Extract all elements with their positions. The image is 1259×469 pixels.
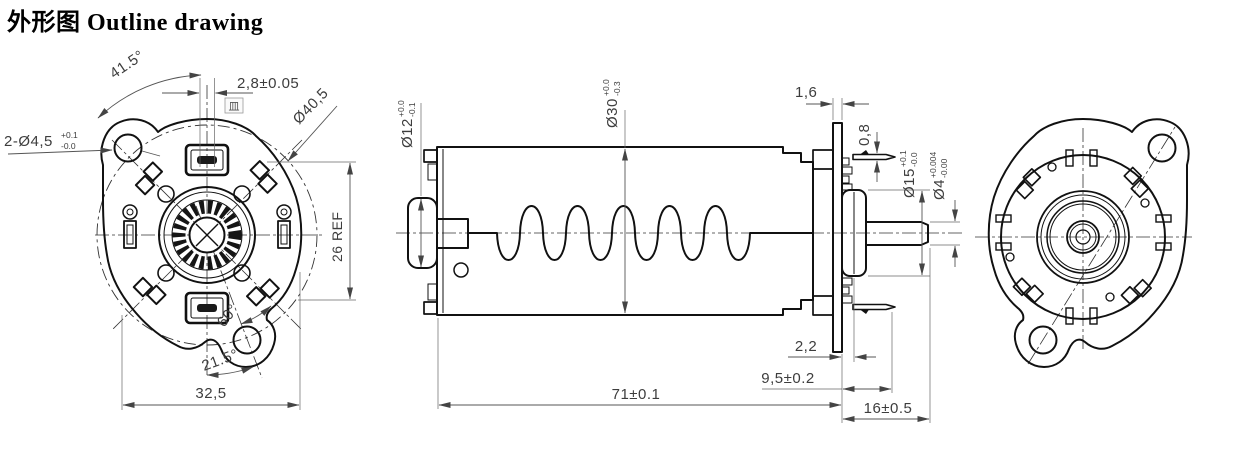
outline-drawing-page: 外形图 Outline drawing (0, 0, 1259, 469)
side-terminal-base-bottom (813, 296, 833, 315)
shaft-dia-text: Ø4 (931, 179, 948, 200)
front-wing-top-right (248, 161, 280, 193)
plate-to-terminal-text: 9,5±0.2 (761, 370, 814, 387)
ear-angle-text: 60° (214, 301, 242, 331)
terminal-thickness-text: 0,8 (856, 124, 873, 146)
front-angle-top-text: 41.5° (107, 47, 148, 82)
body-dia-tol-lower: -0.3 (612, 81, 622, 96)
terminal-thickness-label: 0,8 (856, 124, 873, 146)
ear-angle-label: 60° (214, 301, 242, 331)
rear-slot-top-2 (1090, 150, 1097, 166)
body-dia-tol-upper: +0.0 (601, 79, 611, 96)
front-wing-bottom-right (247, 276, 279, 308)
rear-hole-1 (1048, 163, 1056, 171)
front-top-connector (186, 145, 228, 175)
rear-view (975, 119, 1192, 367)
rear-boss-label: Ø15 +0.1 -0.0 (898, 150, 919, 198)
side-steps-top (842, 158, 852, 190)
rear-hole-2 (1141, 199, 1149, 207)
front-mount-hole-top-left (115, 135, 142, 162)
bottom-angle-text: 21.5° (200, 346, 241, 375)
side-front-boss (437, 219, 468, 248)
mount-holes-leader (8, 150, 112, 154)
front-boss-label: Ø12 +0.0 -0.1 (396, 100, 417, 148)
side-tab-top-2 (428, 164, 437, 180)
datum-symbol-glyph: 皿 (229, 100, 240, 113)
rear-boss-tol-lower: -0.0 (909, 152, 919, 167)
side-view: Ø12 +0.0 -0.1 Ø30 +0.0 -0.3 1,6 0,8 (396, 79, 962, 423)
mount-holes-label: 2-Ø4,5 +0.1 -0.0 (4, 130, 78, 151)
side-terminal-base-top (813, 150, 833, 169)
side-wave (468, 206, 813, 260)
front-angle-top-label: 41.5° (107, 47, 148, 82)
mount-holes-leader-tail (142, 151, 160, 156)
side-tab-top-1 (424, 150, 437, 162)
bottom-angle-label: 21.5° (200, 346, 241, 375)
rear-slot-bottom-2 (1090, 308, 1097, 324)
front-boss-dia-text: Ø12 (399, 118, 416, 148)
width-text: 32,5 (195, 385, 226, 402)
front-view: 41.5° 2,8±0.05 皿 Ø40,5 2-Ø4,5 +0.1 (4, 47, 356, 410)
front-left-screw (123, 205, 137, 248)
rear-slot-left-2 (996, 243, 1011, 250)
rear-wing-top-left (1013, 169, 1043, 199)
mount-holes-tol-upper: +0.1 (61, 130, 78, 140)
side-steps-bottom (842, 278, 852, 303)
body-dia-label: Ø30 +0.0 -0.3 (601, 79, 622, 128)
datum-symbol-box: 皿 (225, 98, 243, 113)
rear-wing-bottom-left (1013, 275, 1043, 305)
front-boss-tol-upper: +0.0 (396, 100, 406, 117)
rear-slot-bottom-1 (1066, 308, 1073, 324)
rear-hole-3 (1106, 293, 1114, 301)
side-shaft (866, 222, 928, 245)
side-terminal-top (853, 150, 895, 160)
side-mounting-plate (833, 123, 842, 352)
body-length-text: 71±0.1 (612, 386, 661, 403)
body-dia-text: Ø30 (604, 98, 621, 128)
rear-hole-4 (1006, 253, 1014, 261)
rear-boss-dia-text: Ø15 (901, 168, 918, 198)
mount-holes-text: 2-Ø4,5 (4, 133, 53, 150)
rear-slot-top-1 (1066, 150, 1073, 166)
outline-drawing-canvas: 41.5° 2,8±0.05 皿 Ø40,5 2-Ø4,5 +0.1 (0, 0, 1259, 469)
slot-width-text: 2,8±0.05 (237, 75, 299, 92)
front-angle-arc (98, 75, 201, 118)
side-terminal-bottom (853, 305, 895, 315)
shaft-dia-tol-upper: +0.004 (928, 151, 938, 178)
plate-to-step-text: 2,2 (795, 338, 817, 355)
shaft-dia-label: Ø4 +0.004 -0.00 (928, 151, 949, 200)
plate-thickness-text: 1,6 (795, 84, 817, 101)
mount-holes-tol-lower: -0.0 (61, 141, 76, 151)
front-right-screw (277, 205, 291, 248)
front-boss-tol-lower: -0.1 (407, 102, 417, 117)
rear-boss-tol-upper: +0.1 (898, 150, 908, 167)
shaft-dia-tol-lower: -0.00 (939, 158, 949, 178)
side-tab-bottom-2 (428, 284, 437, 300)
rear-wing-bottom-right (1121, 277, 1151, 307)
height-ref-label: 26 REF (329, 212, 345, 262)
side-vent-hole (454, 263, 468, 277)
rear-length-text: 16±0.5 (864, 400, 913, 417)
side-tab-bottom-1 (424, 302, 437, 314)
height-ref-text: 26 REF (329, 212, 345, 262)
